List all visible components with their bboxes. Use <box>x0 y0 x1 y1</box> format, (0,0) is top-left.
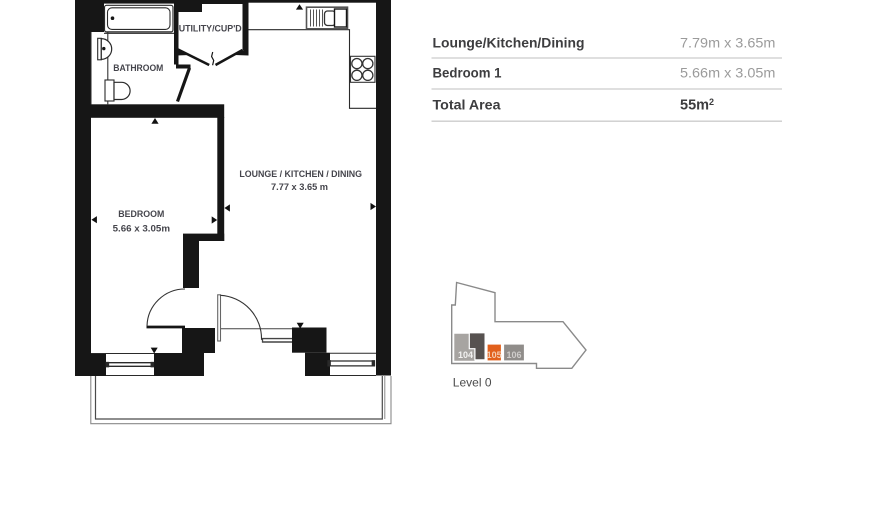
svg-text:Level 0: Level 0 <box>453 376 492 390</box>
svg-text:UTILITY/CUP'D: UTILITY/CUP'D <box>179 24 242 34</box>
svg-text:5.66 x 3.05m: 5.66 x 3.05m <box>113 223 170 233</box>
svg-text:5.66m x 3.05m: 5.66m x 3.05m <box>680 66 775 81</box>
svg-text:7.77 x 3.65 m: 7.77 x 3.65 m <box>271 182 328 192</box>
svg-text:Total Area: Total Area <box>433 98 502 113</box>
svg-text:LOUNGE / KITCHEN / DINING: LOUNGE / KITCHEN / DINING <box>239 169 362 179</box>
svg-text:105: 105 <box>487 350 502 360</box>
svg-text:106: 106 <box>506 350 521 360</box>
svg-text:55m2: 55m2 <box>680 97 714 114</box>
svg-text:BEDROOM: BEDROOM <box>118 209 164 219</box>
svg-text:104: 104 <box>458 350 473 360</box>
svg-text:BATHROOM: BATHROOM <box>113 63 163 73</box>
svg-text:Lounge/Kitchen/Dining: Lounge/Kitchen/Dining <box>433 36 585 51</box>
svg-text:7.79m x 3.65m: 7.79m x 3.65m <box>680 36 775 51</box>
svg-text:Bedroom 1: Bedroom 1 <box>433 66 502 81</box>
